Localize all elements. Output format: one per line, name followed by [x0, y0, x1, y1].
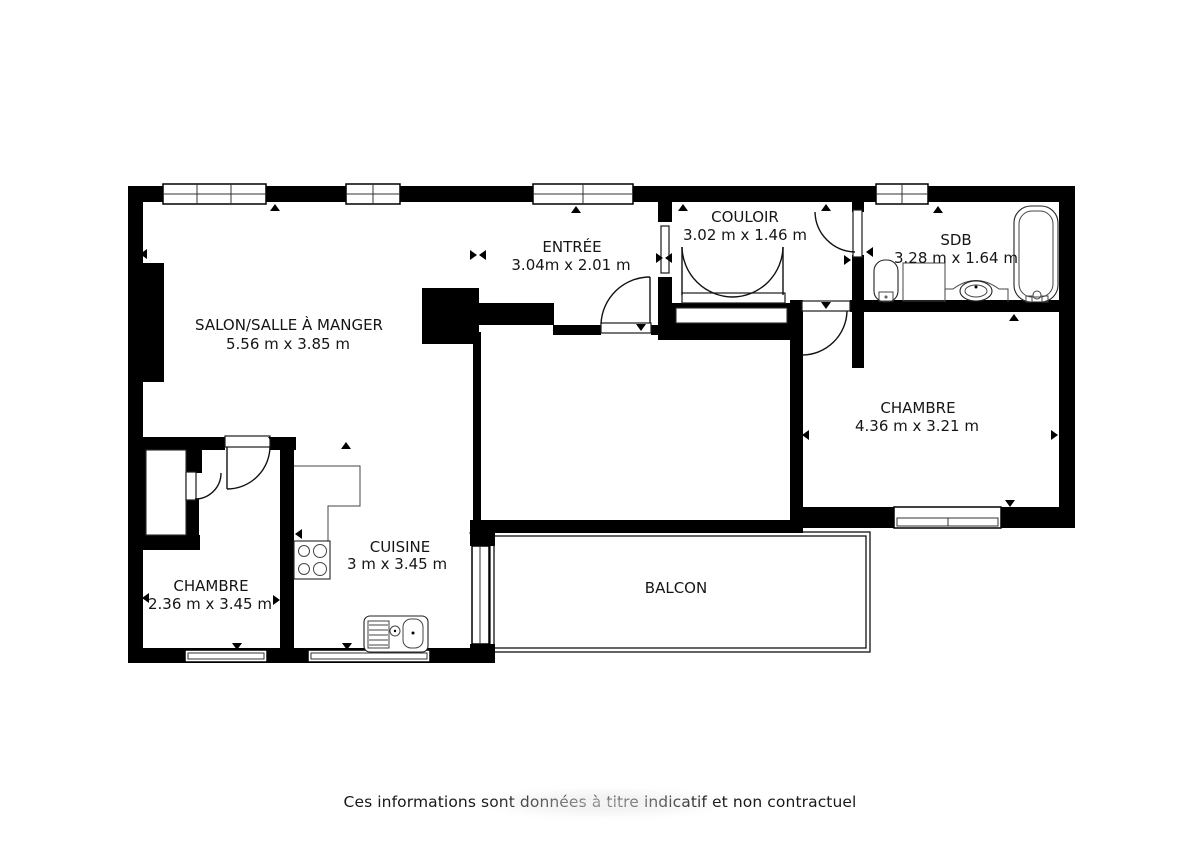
room-dims-bedroom-left: 2.36 m x 3.45 m	[148, 595, 272, 613]
room-dims-entry: 3.04m x 2.01 m	[511, 256, 630, 274]
room-label-balcony: BALCON	[645, 579, 707, 597]
wall-segment	[1059, 186, 1075, 528]
wall-segment	[422, 288, 479, 344]
wall-segment	[470, 644, 495, 663]
stove	[294, 541, 330, 579]
kitchen-counter	[294, 466, 360, 541]
wall-segment	[473, 332, 481, 522]
boundary-marker-salon-entree	[470, 250, 486, 260]
bathtub	[1014, 206, 1058, 302]
window-bathroom	[876, 184, 928, 204]
room-label-hallway: COULOIR	[711, 208, 779, 226]
shower	[903, 263, 945, 301]
wall-segment	[477, 303, 554, 325]
wall-segment	[128, 263, 164, 382]
wall-segment	[185, 499, 199, 537]
door-bathroom	[815, 212, 855, 252]
floor-plan: SALON/SALLE À MANGER 5.56 m x 3.85 m ENT…	[0, 0, 1200, 849]
door-bedroom-left	[227, 446, 270, 489]
room-label-entry: ENTRÉE	[542, 237, 601, 256]
room-dims-hallway: 3.02 m x 1.46 m	[683, 226, 807, 244]
watermark-fade-overlay	[488, 790, 718, 816]
window-living-room	[163, 184, 266, 204]
window-living-room-2	[346, 184, 400, 204]
kitchen-sink	[364, 616, 428, 652]
wall-segment	[658, 325, 795, 340]
sink-vanity	[945, 281, 1008, 303]
door-entry	[601, 277, 650, 324]
door-hallway-closet-right	[733, 247, 783, 297]
door-leaf-closet	[186, 472, 196, 500]
wall-segment	[128, 186, 143, 663]
door-leaf-bathroom	[853, 210, 862, 257]
window-bedroom-left	[185, 650, 267, 662]
door-hallway-closet-left	[682, 247, 733, 297]
door-sill-bedroom-left	[225, 436, 270, 447]
door-bedroom-right	[802, 311, 847, 355]
wall-segment	[658, 200, 672, 222]
wall-segment	[790, 300, 803, 533]
door-leaf-hallway	[661, 226, 669, 273]
room-label-living-room: SALON/SALLE À MANGER	[195, 315, 383, 334]
door-sill-hallway-closet	[682, 293, 785, 303]
room-label-bedroom-left: CHAMBRE	[173, 577, 248, 595]
wall-segment	[553, 325, 601, 335]
window-bedroom-right	[894, 507, 1001, 528]
room-dims-bedroom-right: 4.36 m x 3.21 m	[855, 417, 979, 435]
room-dims-kitchen: 3 m x 3.45 m	[347, 555, 447, 573]
wall-segment	[128, 535, 200, 550]
room-label-bedroom-right: CHAMBRE	[880, 399, 955, 417]
closet-bedroom-left	[146, 450, 186, 535]
room-dims-living-room: 5.56 m x 3.85 m	[226, 335, 350, 353]
door-closet-left	[195, 473, 221, 499]
window-entry	[533, 184, 633, 204]
closet-hallway-shelf	[676, 308, 787, 323]
wall-segment	[478, 520, 803, 533]
room-label-bathroom: SDB	[940, 231, 971, 249]
room-label-kitchen: CUISINE	[370, 538, 431, 556]
room-dims-bathroom: 3.28 m x 1.64 m	[894, 249, 1018, 267]
wall-segment	[280, 437, 294, 662]
wall-segment	[185, 447, 202, 473]
french-door-balcony	[472, 546, 489, 644]
